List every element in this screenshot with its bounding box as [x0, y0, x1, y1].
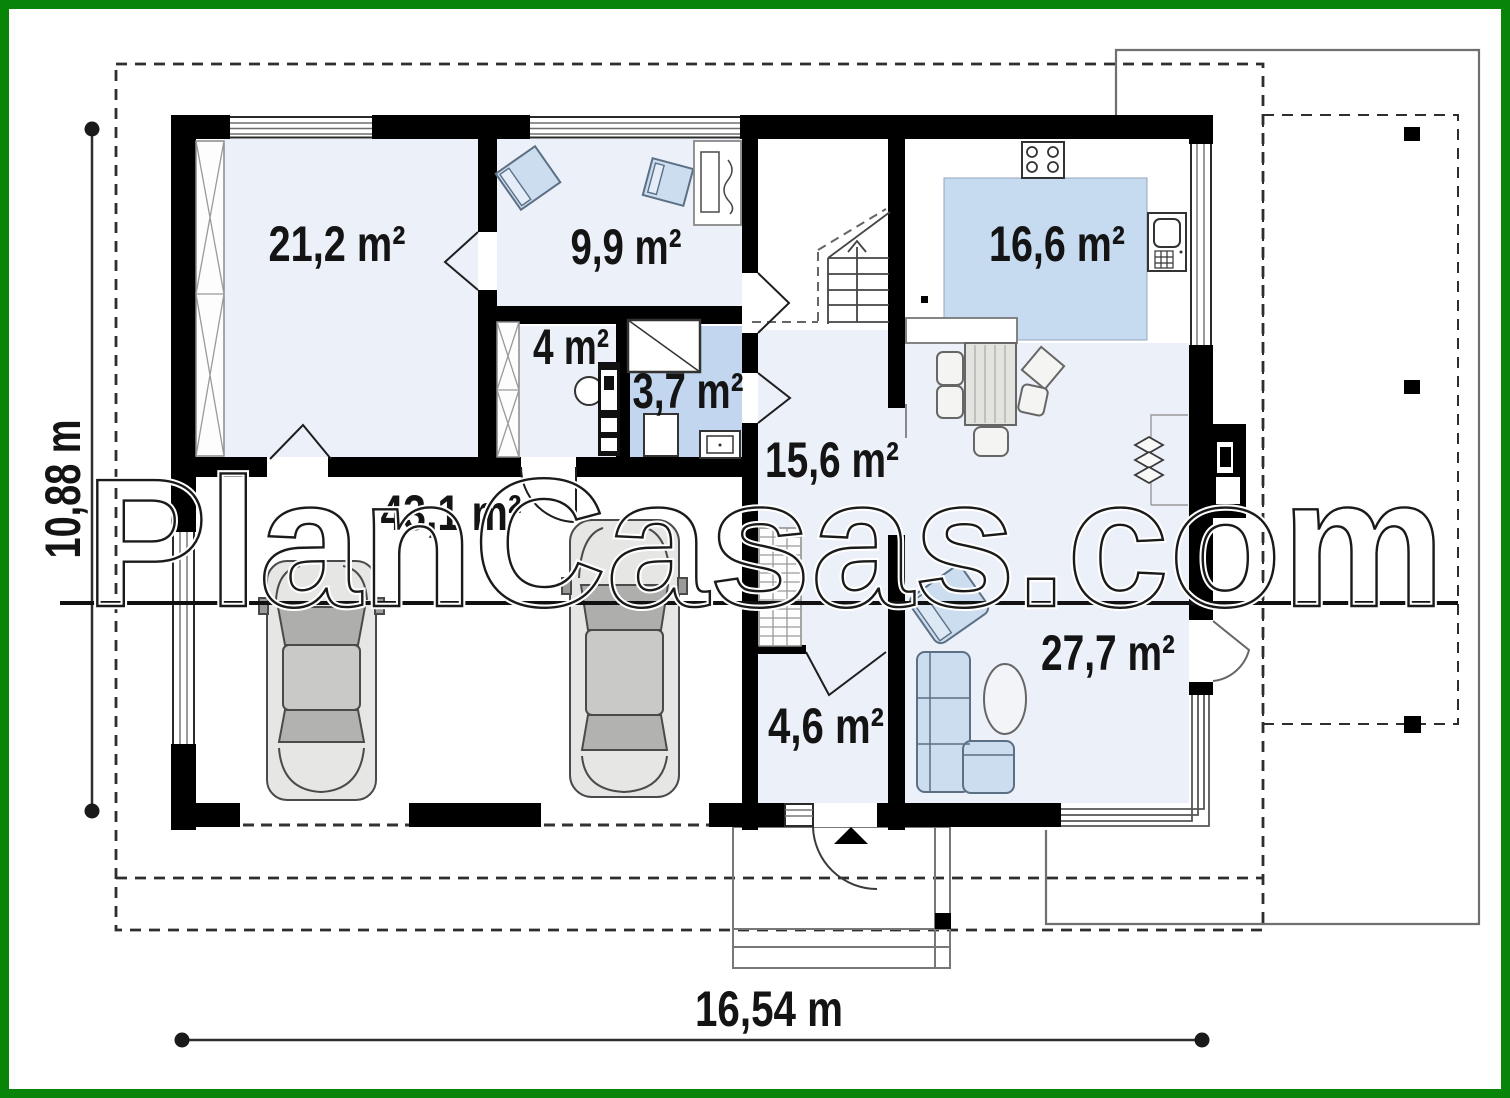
svg-text:4,6 m²: 4,6 m² — [768, 698, 884, 754]
svg-text:16,54 m: 16,54 m — [695, 981, 843, 1037]
svg-text:3,7 m²: 3,7 m² — [633, 363, 744, 419]
svg-text:16,6 m²: 16,6 m² — [989, 216, 1125, 272]
svg-text:PlanCasas.com: PlanCasas.com — [85, 440, 1445, 645]
svg-text:10,88 m: 10,88 m — [35, 420, 91, 559]
svg-text:4 m²: 4 m² — [533, 319, 609, 375]
svg-text:21,2 m²: 21,2 m² — [269, 216, 406, 272]
svg-text:9,9 m²: 9,9 m² — [571, 219, 682, 275]
